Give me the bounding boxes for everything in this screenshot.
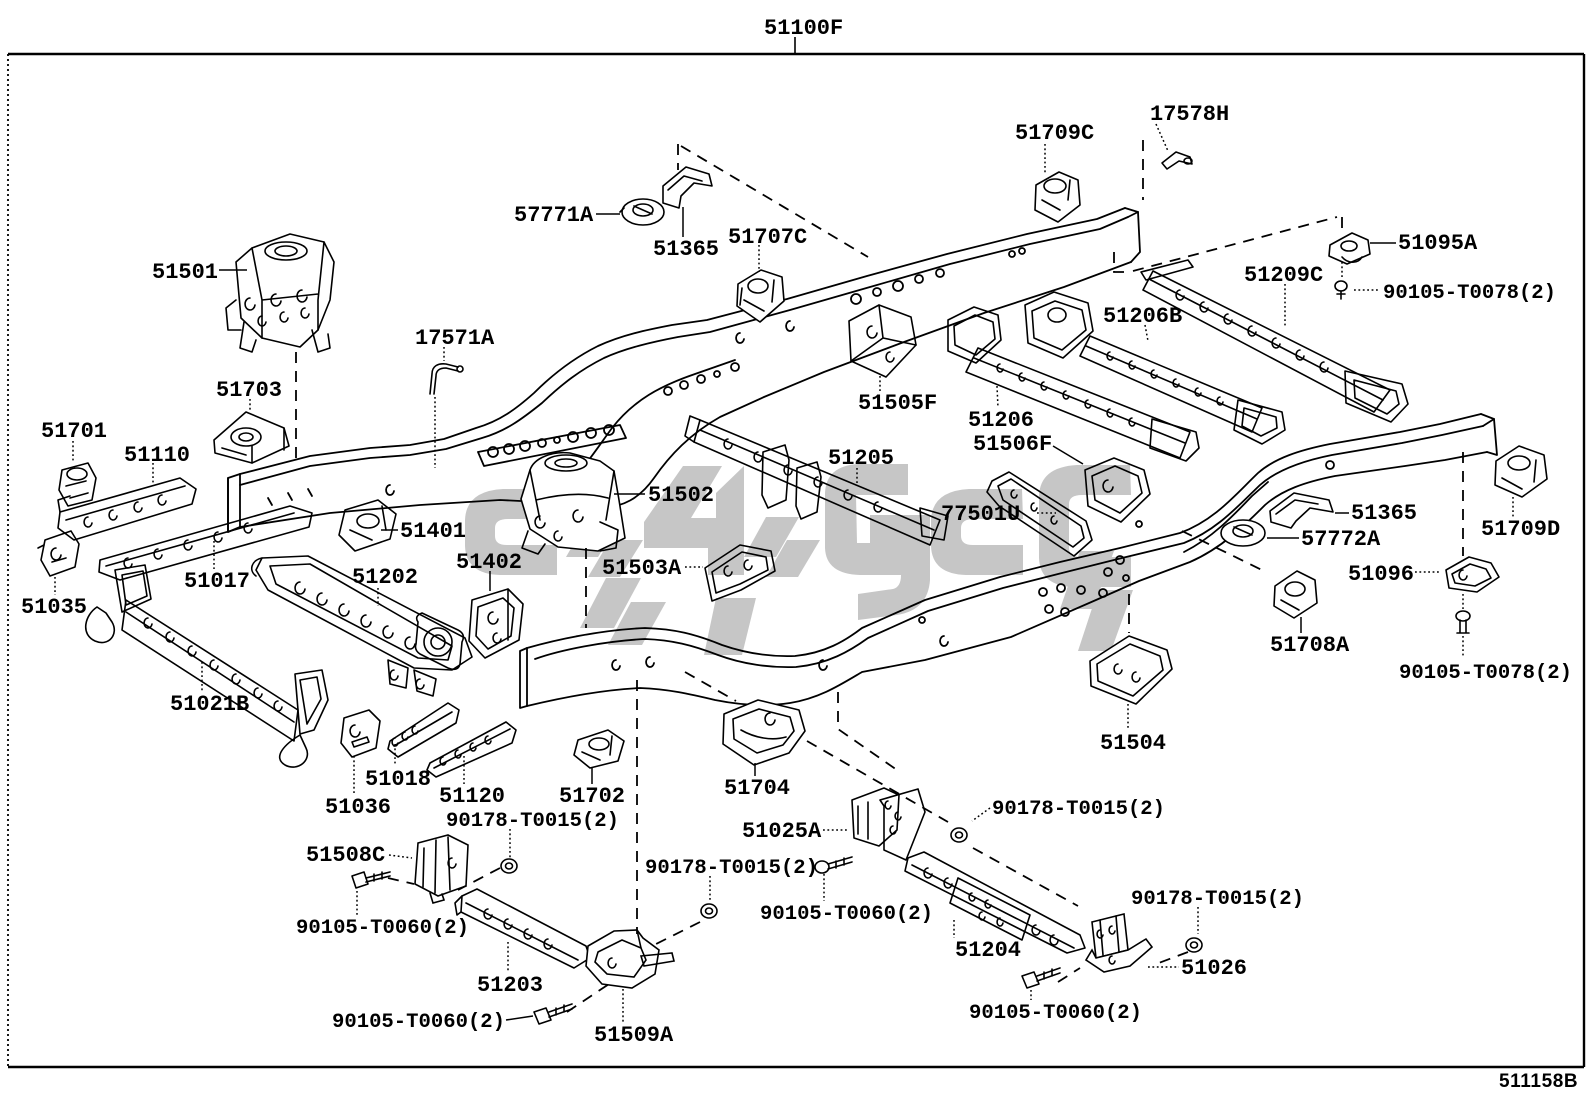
svg-text:51505F: 51505F <box>858 391 937 416</box>
svg-text:90178-T0015(2): 90178-T0015(2) <box>992 798 1165 821</box>
svg-text:51401: 51401 <box>400 519 466 544</box>
svg-text:51018: 51018 <box>365 767 431 792</box>
svg-text:90105-T0060(2): 90105-T0060(2) <box>760 903 933 926</box>
svg-text:51202: 51202 <box>352 565 418 590</box>
svg-text:51206: 51206 <box>968 408 1034 433</box>
svg-text:51708A: 51708A <box>1270 633 1350 658</box>
svg-text:90178-T0015(2): 90178-T0015(2) <box>645 857 818 880</box>
svg-text:51503A: 51503A <box>602 556 682 581</box>
svg-text:51110: 51110 <box>124 443 190 468</box>
svg-text:51100F: 51100F <box>764 16 843 41</box>
svg-text:90105-T0078(2): 90105-T0078(2) <box>1399 662 1572 685</box>
svg-text:51707C: 51707C <box>728 225 807 250</box>
svg-text:51021B: 51021B <box>170 692 249 717</box>
svg-text:51365: 51365 <box>1351 501 1417 526</box>
svg-text:51209C: 51209C <box>1244 263 1323 288</box>
svg-text:51709C: 51709C <box>1015 121 1094 146</box>
svg-text:51203: 51203 <box>477 973 543 998</box>
svg-text:51205: 51205 <box>828 446 894 471</box>
svg-text:51709D: 51709D <box>1481 517 1560 542</box>
svg-text:90105-T0060(2): 90105-T0060(2) <box>296 917 469 940</box>
svg-text:77501U: 77501U <box>941 502 1020 527</box>
svg-text:51501: 51501 <box>152 260 218 285</box>
svg-text:51508C: 51508C <box>306 843 385 868</box>
svg-text:51703: 51703 <box>216 378 282 403</box>
svg-text:57771A: 57771A <box>514 203 594 228</box>
svg-text:51502: 51502 <box>648 483 714 508</box>
svg-text:90105-T0078(2): 90105-T0078(2) <box>1383 282 1556 305</box>
svg-text:17571A: 17571A <box>415 326 495 351</box>
svg-text:51025A: 51025A <box>742 819 822 844</box>
svg-text:51702: 51702 <box>559 784 625 809</box>
svg-text:90105-T0060(2): 90105-T0060(2) <box>969 1002 1142 1025</box>
svg-text:51096: 51096 <box>1348 562 1414 587</box>
svg-text:51365: 51365 <box>653 237 719 262</box>
svg-text:51701: 51701 <box>41 419 107 444</box>
svg-text:51704: 51704 <box>724 776 790 801</box>
svg-text:51120: 51120 <box>439 784 505 809</box>
svg-text:90105-T0060(2): 90105-T0060(2) <box>332 1011 505 1034</box>
svg-text:51095A: 51095A <box>1398 231 1478 256</box>
svg-text:90178-T0015(2): 90178-T0015(2) <box>446 810 619 833</box>
svg-text:51204: 51204 <box>955 938 1021 963</box>
svg-text:17578H: 17578H <box>1150 102 1229 127</box>
svg-text:511158B: 511158B <box>1499 1071 1578 1092</box>
svg-text:51035: 51035 <box>21 595 87 620</box>
svg-text:51026: 51026 <box>1181 956 1247 981</box>
svg-text:51017: 51017 <box>184 569 250 594</box>
svg-text:51036: 51036 <box>325 795 391 820</box>
svg-text:51506F: 51506F <box>973 432 1052 457</box>
svg-text:57772A: 57772A <box>1301 527 1381 552</box>
svg-text:51402: 51402 <box>456 550 522 575</box>
svg-text:51206B: 51206B <box>1103 304 1182 329</box>
svg-text:51509A: 51509A <box>594 1023 674 1048</box>
svg-text:51504: 51504 <box>1100 731 1166 756</box>
svg-text:90178-T0015(2): 90178-T0015(2) <box>1131 888 1304 911</box>
